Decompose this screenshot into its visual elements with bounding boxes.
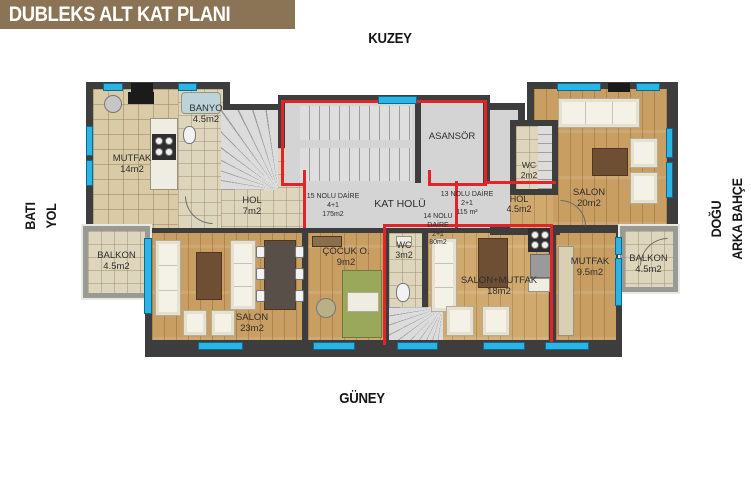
sofa xyxy=(431,238,457,312)
door-header xyxy=(608,83,630,92)
window xyxy=(636,83,660,91)
room-label-banyo: BANYO 4.5m2 xyxy=(176,104,236,125)
room-area: 2m2 xyxy=(521,170,538,180)
room-label-balkon-right: BALKON 4.5m2 xyxy=(620,254,677,275)
room-area: 4.5m2 xyxy=(506,204,531,214)
room-area: 9.5m2 xyxy=(577,267,603,278)
room-name: SALON+MUTFAK xyxy=(461,275,537,286)
window xyxy=(86,126,93,156)
room-area: 4.5m2 xyxy=(103,261,129,272)
apartment-number2: DAİRE xyxy=(427,222,448,229)
boundary-line xyxy=(484,100,487,186)
window xyxy=(397,342,438,350)
window xyxy=(666,128,673,158)
apartment-type: 2+1 xyxy=(461,200,473,207)
dining-chair xyxy=(295,246,304,258)
stairs-main-upper-flight xyxy=(300,106,412,140)
room-name: SALON xyxy=(573,187,605,198)
apartment-area: 175m2 xyxy=(322,211,343,218)
armchair xyxy=(482,306,510,336)
burner-icon xyxy=(155,137,163,145)
room-label-asansor: ASANSÖR xyxy=(422,132,482,143)
apartment-label-14: 14 NOLU DAİRE 2+1 80m2 xyxy=(420,213,456,248)
apartment-type: 4+1 xyxy=(327,202,339,209)
dining-chair xyxy=(256,268,265,280)
room-area: 9m2 xyxy=(337,257,355,268)
plan-title: DUBLEKS ALT KAT PLANI xyxy=(0,4,230,25)
apartment-label-15: 15 NOLU DAİRE 4+1 175m2 xyxy=(303,193,363,219)
pillow xyxy=(347,292,379,312)
compass-north-text: KUZEY xyxy=(368,30,411,47)
title-bar: DUBLEKS ALT KAT PLANI xyxy=(0,0,295,29)
window xyxy=(378,96,417,104)
apartment-number: 13 NOLU DAİRE xyxy=(441,191,494,198)
window xyxy=(545,342,589,350)
coffee-table xyxy=(196,252,222,300)
compass-west-line1: BATI xyxy=(22,202,38,229)
dining-chair xyxy=(256,290,265,302)
room-name: KAT HOLÜ xyxy=(374,198,426,210)
boundary-line xyxy=(281,100,284,186)
apartment-type: 2+1 xyxy=(432,231,444,238)
burner-icon xyxy=(541,241,549,249)
room-label-salon-23: SALON 23m2 xyxy=(222,313,282,334)
window xyxy=(86,160,93,186)
burner-icon xyxy=(531,241,539,249)
armchair xyxy=(630,138,658,168)
room-name: BANYO xyxy=(189,103,222,114)
compass-east: DOĞU ARKA BAHÇE xyxy=(706,170,742,269)
window xyxy=(103,83,123,91)
room-label-cocuk: ÇOCUK O. 9m2 xyxy=(312,247,380,268)
sofa xyxy=(230,240,256,310)
room-area: 18m2 xyxy=(487,286,511,297)
burner-icon xyxy=(531,231,539,239)
room-label-salon-20: SALON 20m2 xyxy=(559,188,619,209)
room-label-hol-7: HOL 7m2 xyxy=(222,196,282,217)
room-label-kat-holu: KAT HOLÜ xyxy=(368,199,432,211)
window xyxy=(198,342,243,350)
compass-north: KUZEY xyxy=(349,31,432,48)
dining-chair xyxy=(295,290,304,302)
apartment-number: 15 NOLU DAİRE xyxy=(307,193,360,200)
apartment-number: 14 NOLU xyxy=(423,213,452,220)
water-heater-icon xyxy=(104,95,122,113)
burner-icon xyxy=(165,137,173,145)
room-area: 20m2 xyxy=(577,198,601,209)
toilet-icon xyxy=(183,126,196,144)
burner-icon xyxy=(541,231,549,239)
window xyxy=(483,342,525,350)
room-name: BALKON xyxy=(629,253,668,264)
room-name: ÇOCUK O. xyxy=(323,246,370,257)
room-label-mutfak-95: MUTFAK 9.5m2 xyxy=(560,257,620,278)
room-name: ASANSÖR xyxy=(429,131,475,142)
compass-east-line2: ARKA BAHÇE xyxy=(729,178,745,260)
dining-table xyxy=(264,240,296,310)
window xyxy=(557,83,601,91)
window xyxy=(313,342,355,350)
boundary-line xyxy=(383,224,386,345)
room-name: WC xyxy=(397,240,412,250)
room-label-wc-3: WC 3m2 xyxy=(388,240,420,260)
toilet-icon xyxy=(396,283,410,302)
boundary-line xyxy=(484,181,556,184)
dining-chair xyxy=(256,246,265,258)
room-area: 3m2 xyxy=(395,250,413,260)
room-name: HOL xyxy=(242,195,262,206)
dining-chair xyxy=(295,268,304,280)
room-name: SALON xyxy=(236,312,268,323)
apartment-area: 80m2 xyxy=(429,239,447,246)
armchair xyxy=(183,310,207,336)
rug-icon xyxy=(316,298,336,318)
compass-west-line2: YOL xyxy=(43,203,59,228)
room-name: MUTFAK xyxy=(571,256,610,267)
floor-plan-image: MUTFAK 14m2 BANYO 4.5m2 HOL 7m2 ASANSÖR … xyxy=(0,0,751,480)
door-header xyxy=(131,83,153,92)
compass-south: GÜNEY xyxy=(322,391,401,408)
room-label-balkon-left: BALKON 4.5m2 xyxy=(88,251,145,272)
room-area: 7m2 xyxy=(243,206,261,217)
apartment-area: 115 m² xyxy=(456,209,477,216)
stairs-main-lower-flight xyxy=(300,148,412,181)
room-label-wc-2: WC 2m2 xyxy=(512,161,546,180)
room-label-hol-45: HOL 4.5m2 xyxy=(497,194,541,214)
balcony-door xyxy=(144,238,152,314)
sofa xyxy=(155,240,181,316)
armchair xyxy=(446,306,474,336)
compass-west: BATI YOL xyxy=(20,176,56,257)
coffee-table xyxy=(592,148,628,176)
room-name: MUTFAK xyxy=(113,153,152,164)
room-area: 14m2 xyxy=(120,164,144,175)
window xyxy=(666,162,673,198)
boundary-line xyxy=(383,224,553,227)
wall-asansor-divider xyxy=(415,103,421,183)
balcony-door xyxy=(615,237,622,255)
room-name: HOL xyxy=(510,194,529,204)
room-area: 23m2 xyxy=(240,323,264,334)
room-name: WC xyxy=(522,160,536,170)
compass-south-text: GÜNEY xyxy=(339,390,385,407)
compass-east-line1: DOĞU xyxy=(708,201,724,238)
cabinet-icon xyxy=(128,92,154,104)
room-label-mutfak-14: MUTFAK 14m2 xyxy=(102,154,162,175)
boundary-line xyxy=(428,170,431,186)
room-name: BALKON xyxy=(97,250,136,261)
room-label-salon-mutfak: SALON+MUTFAK 18m2 xyxy=(446,276,552,297)
burner-icon xyxy=(165,148,173,156)
armchair xyxy=(630,172,658,204)
room-area: 4.5m2 xyxy=(635,264,661,275)
window xyxy=(178,83,197,91)
sofa xyxy=(558,98,640,128)
room-area: 4.5m2 xyxy=(193,114,219,125)
